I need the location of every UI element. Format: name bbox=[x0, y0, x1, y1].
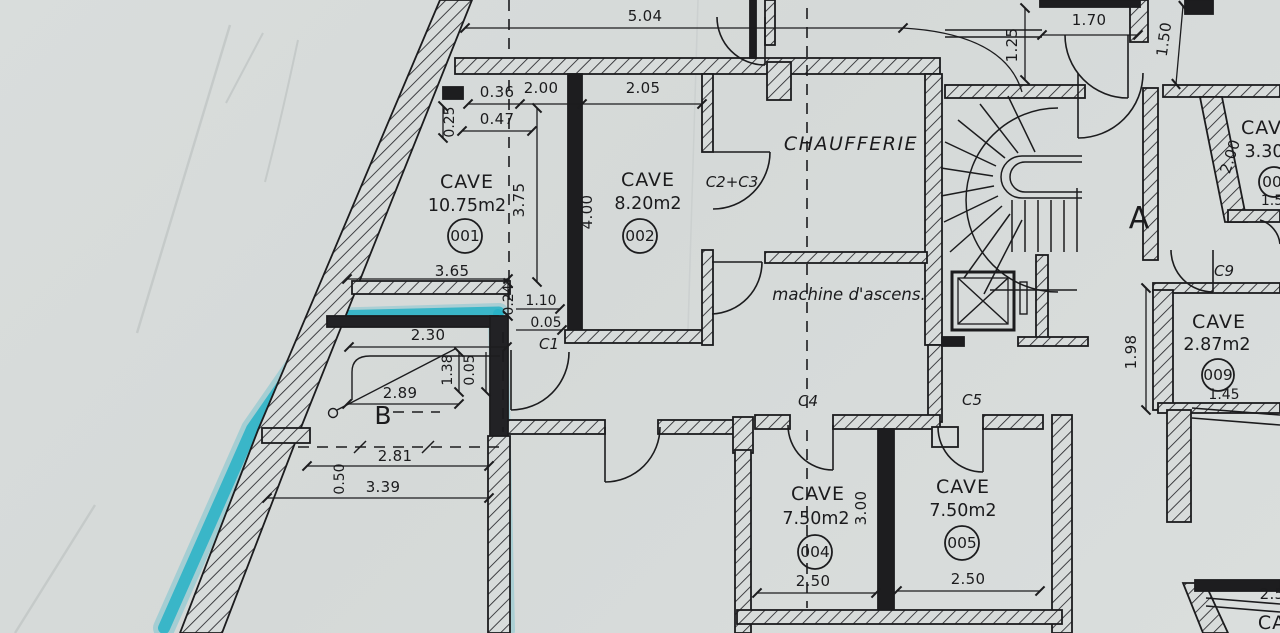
dim-partial-25: 2.5 bbox=[1260, 585, 1280, 603]
room-009-name: CAVE bbox=[1192, 311, 1246, 333]
room-edge-name: CAVE bbox=[1241, 117, 1280, 139]
door-c4 bbox=[788, 425, 833, 470]
wall-cave004-005 bbox=[878, 429, 894, 612]
dim-005: 0.05 bbox=[530, 315, 561, 331]
floor-plan-drawing: 5.04 0.36 2.00 2.05 0.47 0.25 CAVE 10.75… bbox=[0, 0, 1280, 633]
door-c9-label: C9 bbox=[1214, 262, 1234, 280]
room-edge-area: 3.30 bbox=[1245, 142, 1280, 162]
room-partial-ca: CA bbox=[1258, 612, 1280, 633]
room-004-number: 004 bbox=[800, 543, 830, 561]
room-009-area: 2.87m2 bbox=[1183, 335, 1250, 355]
room-002-name: CAVE bbox=[621, 169, 675, 191]
room-005-area: 7.50m2 bbox=[929, 501, 996, 521]
dim-205: 2.05 bbox=[626, 79, 661, 97]
dim-15: 1.5 bbox=[1261, 193, 1280, 209]
dim-281: 2.81 bbox=[378, 447, 413, 465]
dim-150: 1.50 bbox=[1153, 21, 1176, 58]
dim-005b: 0.05 bbox=[462, 354, 478, 385]
dim-145: 1.45 bbox=[1208, 387, 1239, 403]
room-004-name: CAVE bbox=[791, 483, 845, 505]
machine-room-label: machine d'ascens. bbox=[772, 285, 925, 304]
dim-125: 1.25 bbox=[1003, 28, 1021, 63]
room-edge-number: 00 bbox=[1262, 173, 1280, 191]
dim-250a: 2.50 bbox=[796, 572, 831, 590]
door-c4-label: C4 bbox=[798, 392, 818, 410]
dim-289: 2.89 bbox=[383, 384, 418, 402]
walls bbox=[180, 0, 1280, 633]
door-c2c3-label: C2+C3 bbox=[706, 173, 759, 191]
room-004-area: 7.50m2 bbox=[782, 509, 849, 529]
dim-230: 2.30 bbox=[411, 326, 446, 344]
dim-047: 0.47 bbox=[480, 110, 515, 128]
dim-339: 3.39 bbox=[366, 478, 401, 496]
dim-250b: 2.50 bbox=[951, 570, 986, 588]
core-left-wall bbox=[925, 74, 942, 345]
dim-024: 0.24 bbox=[501, 284, 517, 315]
door-machine-room bbox=[712, 262, 762, 314]
door-c5-label: C5 bbox=[962, 391, 982, 409]
dim-170: 1.70 bbox=[1072, 11, 1107, 29]
room-002-number: 002 bbox=[625, 227, 655, 245]
zone-b-label: B bbox=[374, 401, 391, 430]
spiral-staircase bbox=[941, 96, 1082, 294]
door-c1 bbox=[511, 350, 569, 410]
dim-198: 1.98 bbox=[1122, 335, 1140, 370]
dim-top-span: 5.04 bbox=[628, 7, 663, 25]
room-005-name: CAVE bbox=[936, 476, 990, 498]
zone-a-label: A bbox=[1129, 201, 1150, 236]
door-corridor bbox=[605, 427, 660, 482]
dim-365: 3.65 bbox=[435, 262, 470, 280]
door-c1-label: C1 bbox=[539, 335, 559, 353]
stair-treads bbox=[941, 96, 1077, 294]
dim-036: 0.36 bbox=[480, 83, 515, 101]
room-001-area: 10.75m2 bbox=[428, 196, 506, 216]
dim-025: 0.25 bbox=[442, 106, 458, 137]
dim-300: 3.00 bbox=[852, 491, 870, 526]
door-edge-partial bbox=[1260, 220, 1280, 244]
room-001-number: 001 bbox=[450, 227, 480, 245]
survey-point bbox=[329, 409, 338, 418]
dim-400: 4.00 bbox=[578, 195, 596, 230]
chaufferie-label: CHAUFFERIE bbox=[784, 133, 918, 155]
top-wall bbox=[455, 58, 940, 74]
dim-200: 2.00 bbox=[524, 79, 559, 97]
dim-375: 3.75 bbox=[510, 183, 528, 218]
dim-138: 1.38 bbox=[440, 354, 456, 385]
scanned-floor-plan: 5.04 0.36 2.00 2.05 0.47 0.25 CAVE 10.75… bbox=[0, 0, 1280, 633]
room-001-name: CAVE bbox=[440, 171, 494, 193]
room-002-area: 8.20m2 bbox=[614, 194, 681, 214]
dim-110: 1.10 bbox=[525, 293, 556, 309]
room-005-number: 005 bbox=[947, 534, 977, 552]
dim-050: 0.50 bbox=[332, 463, 348, 494]
elevator-shaft bbox=[952, 272, 1027, 330]
room-009-number: 009 bbox=[1203, 366, 1233, 384]
